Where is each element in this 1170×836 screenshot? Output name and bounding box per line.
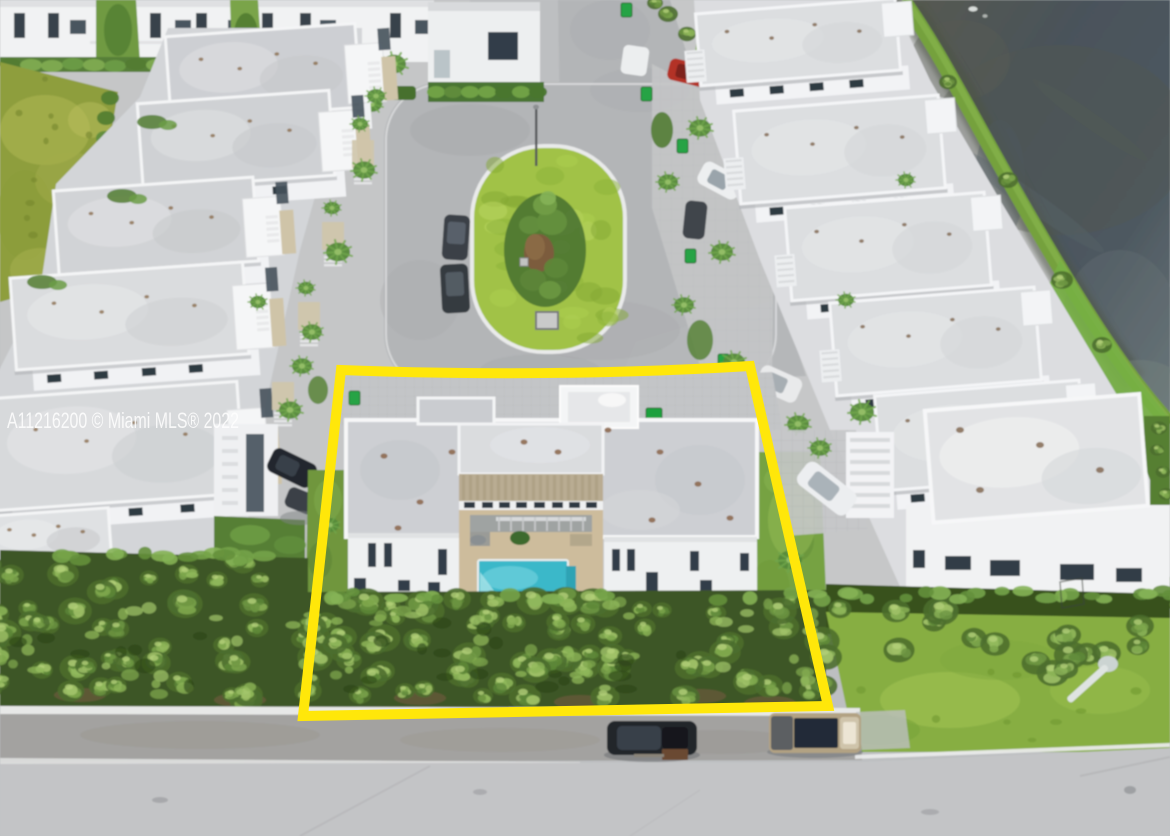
svg-text:A11216200 © Miami MLS® 2022: A11216200 © Miami MLS® 2022 bbox=[7, 408, 239, 433]
